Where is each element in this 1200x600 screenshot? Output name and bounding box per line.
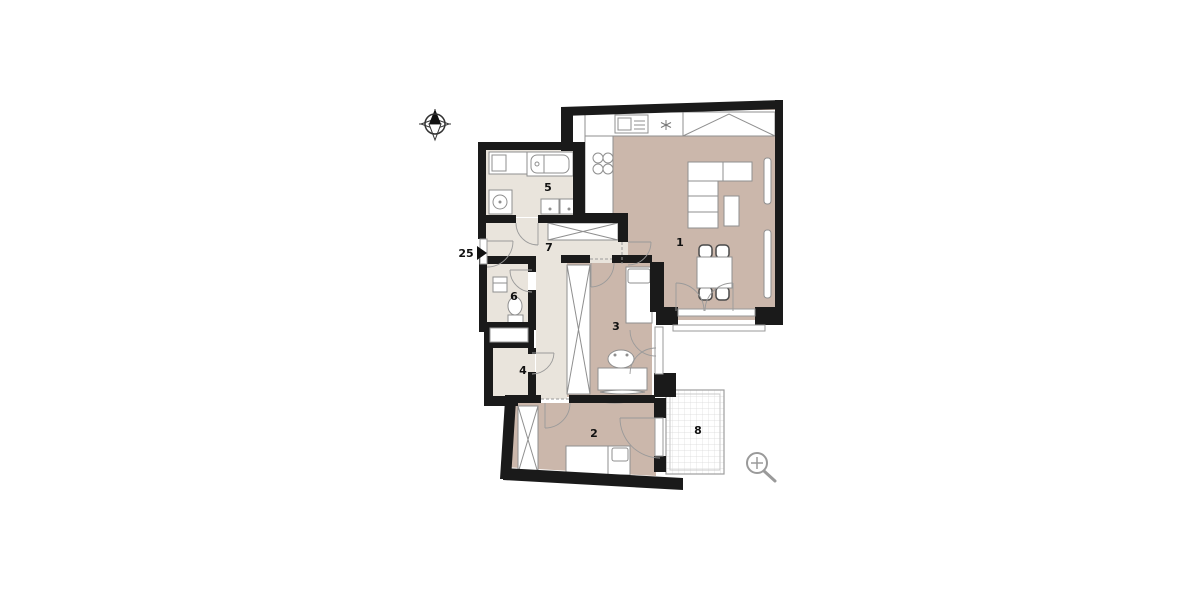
- room-label-4: 4: [519, 364, 527, 377]
- room-label-7: 7: [545, 241, 553, 254]
- wardrobe-icon: [567, 265, 590, 394]
- radiator-icon: [764, 230, 771, 298]
- room-label-8: 8: [694, 424, 702, 437]
- bed-icon: [566, 446, 630, 475]
- room-label-6: 6: [510, 290, 518, 303]
- tall-cabinet-icon: [683, 112, 775, 136]
- radiator-icon: [764, 158, 771, 204]
- hallway-wardrobe-icon: [548, 223, 618, 240]
- room-label-3: 3: [612, 320, 620, 333]
- bathtub-icon: [527, 152, 573, 176]
- washing-machine-icon: [489, 190, 512, 214]
- wardrobe-icon: [518, 406, 538, 473]
- kitchen-sink-icon: [615, 115, 648, 133]
- double-sink-icon: [541, 199, 578, 214]
- bathroom-counter-icon: [489, 152, 528, 174]
- wc-sink-icon: [493, 277, 507, 292]
- coffee-table-icon: [724, 196, 739, 226]
- zoom-icon[interactable]: [747, 453, 775, 481]
- room-label-5: 5: [544, 181, 552, 194]
- room-label-1: 1: [676, 236, 684, 249]
- floor-plan-svg: 1 2 3 4 5 6 7 8 25: [0, 0, 1200, 600]
- compass-icon: [419, 109, 451, 140]
- entrance-number: 25: [458, 247, 473, 260]
- room-label-2: 2: [590, 427, 598, 440]
- single-bed-icon: [626, 267, 652, 323]
- floor-plan-page: 1 2 3 4 5 6 7 8 25: [0, 0, 1200, 600]
